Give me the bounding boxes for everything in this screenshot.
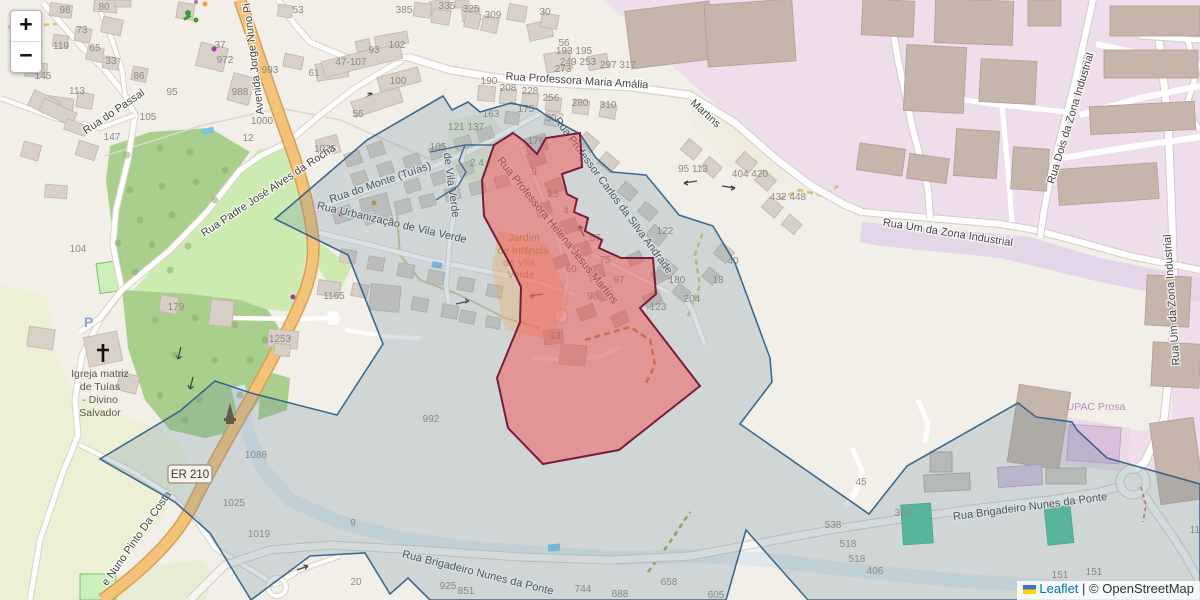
svg-text:20: 20 <box>350 577 362 588</box>
svg-text:61: 61 <box>308 68 320 79</box>
svg-text:86: 86 <box>133 71 145 82</box>
svg-text:190: 190 <box>481 76 498 87</box>
svg-text:280: 280 <box>572 98 589 109</box>
svg-text:228: 228 <box>522 86 539 97</box>
svg-text:104: 104 <box>70 244 87 255</box>
svg-text:93: 93 <box>368 45 380 56</box>
svg-text:65: 65 <box>89 43 101 54</box>
svg-text:179: 179 <box>168 302 185 313</box>
svg-text:95: 95 <box>166 87 178 98</box>
svg-text:297 317: 297 317 <box>600 60 637 71</box>
svg-text:972: 972 <box>217 55 234 66</box>
svg-text:119: 119 <box>53 41 69 52</box>
svg-text:Igreja matriz: Igreja matriz <box>71 368 129 380</box>
svg-text:de Tuías: de Tuías <box>80 381 120 393</box>
svg-text:- Divino: - Divino <box>82 394 118 406</box>
svg-text:45: 45 <box>855 477 867 488</box>
svg-text:30: 30 <box>539 7 551 18</box>
svg-text:1165: 1165 <box>323 291 345 302</box>
svg-text:1000: 1000 <box>251 116 274 127</box>
svg-text:56: 56 <box>352 109 364 120</box>
svg-text:147: 147 <box>104 132 121 143</box>
svg-text:100: 100 <box>390 76 407 87</box>
svg-text:102: 102 <box>389 40 406 51</box>
svg-text:256: 256 <box>543 93 560 104</box>
svg-text:325: 325 <box>463 4 480 15</box>
svg-text:105: 105 <box>140 112 157 123</box>
svg-text:208: 208 <box>500 83 517 94</box>
svg-text:993: 993 <box>262 65 279 76</box>
svg-text:98: 98 <box>59 5 71 16</box>
svg-text:988: 988 <box>232 87 249 98</box>
svg-text:113: 113 <box>69 86 85 97</box>
svg-text:95 113: 95 113 <box>678 164 708 175</box>
svg-text:309: 309 <box>485 10 502 21</box>
svg-text:335: 335 <box>439 1 456 12</box>
svg-text:310: 310 <box>600 100 617 111</box>
svg-text:53: 53 <box>292 5 304 16</box>
svg-text:UPAC Prosa: UPAC Prosa <box>1067 401 1126 413</box>
svg-text:P: P <box>84 314 93 330</box>
svg-text:1253: 1253 <box>269 334 292 345</box>
svg-text:12: 12 <box>242 133 254 144</box>
svg-text:1075: 1075 <box>314 144 337 155</box>
svg-text:80: 80 <box>98 2 110 13</box>
svg-text:33: 33 <box>105 56 117 67</box>
svg-text:Salvador: Salvador <box>79 407 121 419</box>
svg-text:ER 210: ER 210 <box>171 469 209 481</box>
svg-text:273: 273 <box>555 64 572 75</box>
svg-text:73: 73 <box>76 25 88 36</box>
svg-text:56: 56 <box>558 38 570 49</box>
svg-text:404 420: 404 420 <box>732 169 769 180</box>
svg-text:385: 385 <box>396 5 413 16</box>
svg-text:432 448: 432 448 <box>770 192 807 203</box>
svg-text:37: 37 <box>214 40 226 51</box>
svg-text:47-107: 47-107 <box>335 57 367 68</box>
